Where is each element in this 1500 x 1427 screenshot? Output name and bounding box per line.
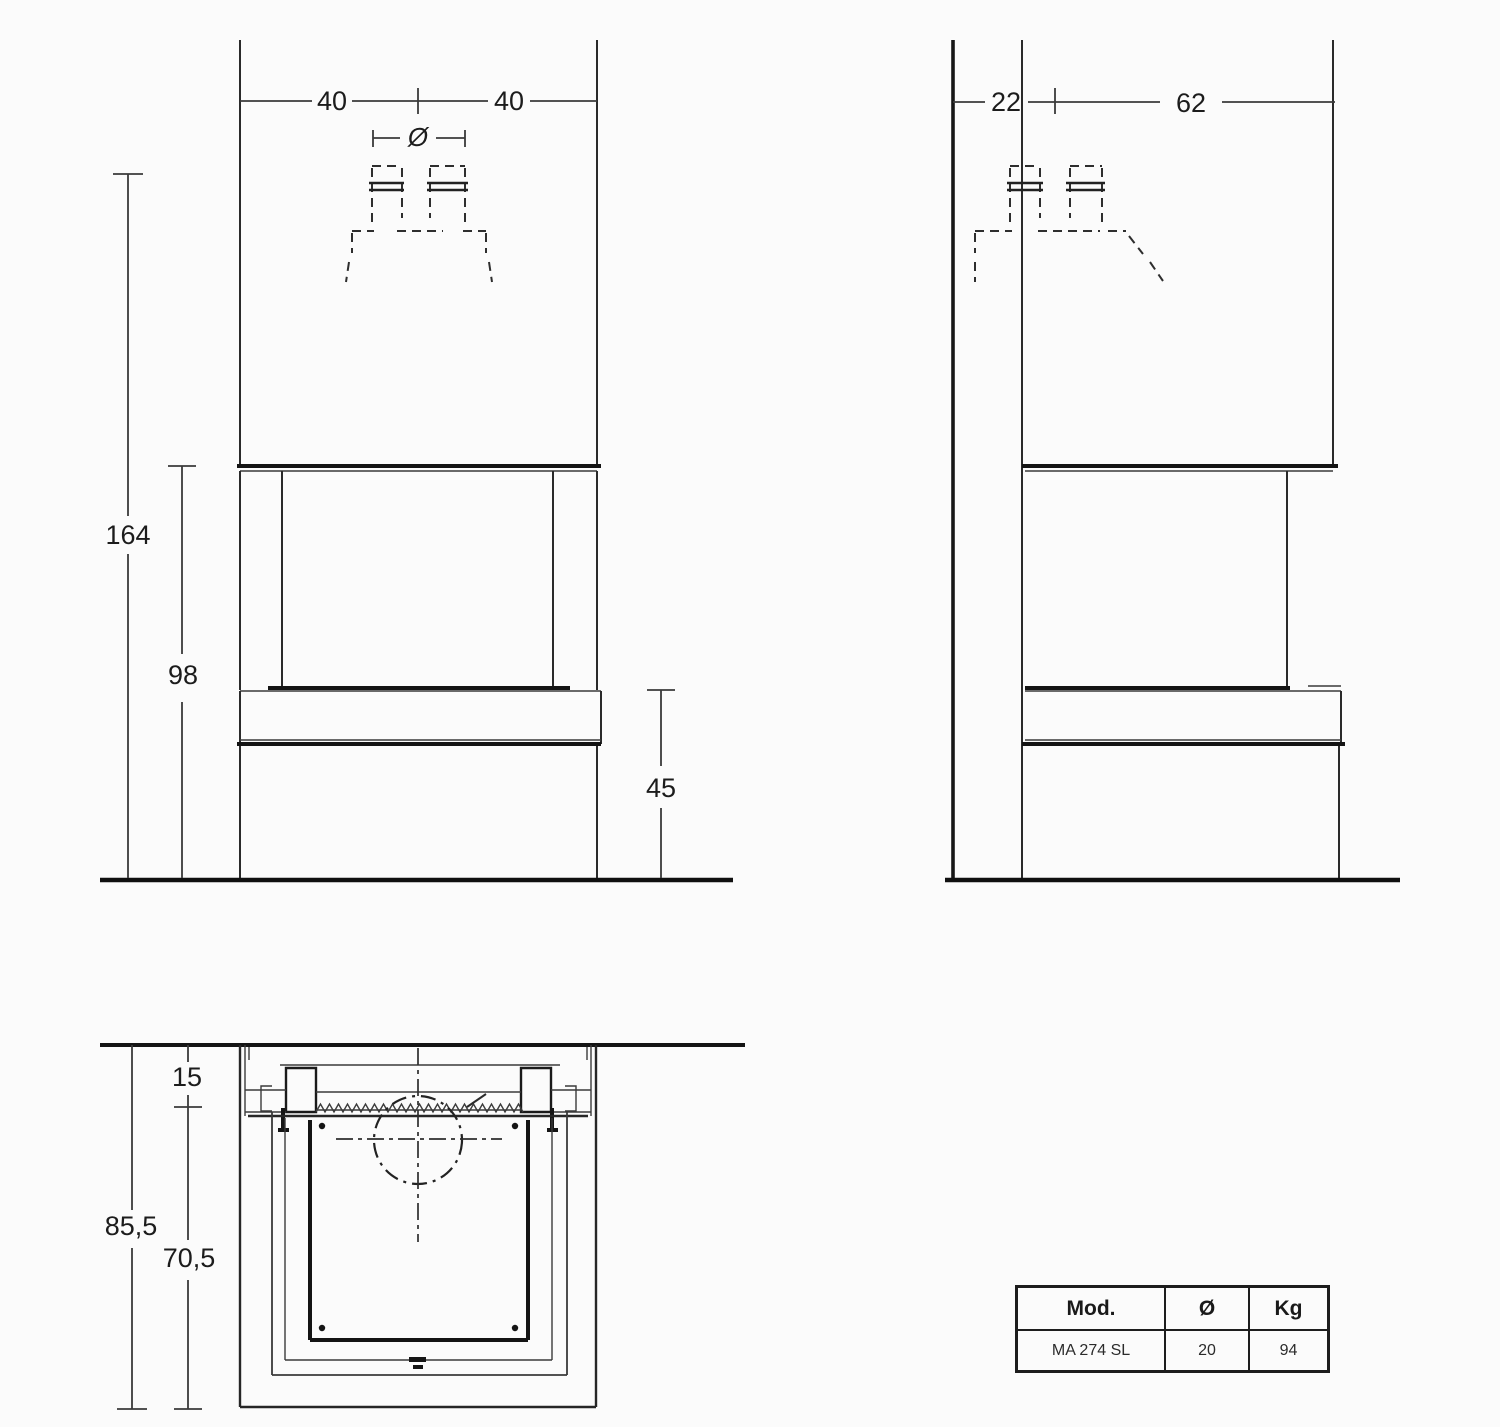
flue-center-lines-plan (336, 1048, 502, 1242)
screw-top-left (319, 1123, 325, 1129)
frame-post-left (286, 1068, 316, 1112)
side-view (945, 40, 1400, 880)
screw-top-right (512, 1123, 518, 1129)
bottom-clip-bar-2 (413, 1365, 423, 1369)
spec-table-header-model: Mod. (1018, 1288, 1164, 1329)
dim-label-70-5: 70,5 (163, 1243, 216, 1273)
spec-table-cell-diameter: 20 (1164, 1329, 1248, 1370)
flue-flare-dashed-side (975, 231, 1163, 282)
dim-label-62: 62 (1176, 88, 1206, 118)
flue-circle-plan (374, 1096, 462, 1184)
bench-sides-front (240, 691, 601, 744)
firebox-column-lines (282, 471, 553, 688)
bottom-clip-bar (409, 1357, 426, 1362)
base-sides-front (240, 746, 597, 878)
spec-table-cell-weight: 94 (1248, 1329, 1327, 1370)
dim-label-40-right: 40 (494, 86, 524, 116)
flue-collar-dashed-side (1010, 166, 1102, 228)
screw-bottom-left (319, 1325, 325, 1331)
plan-view (100, 1045, 745, 1409)
dim-label-40-left: 40 (317, 86, 347, 116)
firebox-plan (310, 1120, 528, 1340)
inner-shell-plan (272, 1112, 567, 1375)
fireplace-technical-drawing: 40 40 Ø 164 98 45 22 62 15 85,5 70,5 (0, 0, 1500, 1427)
dim-label-45: 45 (646, 773, 676, 803)
spec-table: Mod. Ø Kg MA 274 SL 20 94 (1015, 1285, 1330, 1373)
dim-label-22: 22 (991, 87, 1021, 117)
flue-collar-rings-front (369, 183, 468, 190)
drawing-page: 40 40 Ø 164 98 45 22 62 15 85,5 70,5 Mod… (0, 0, 1500, 1427)
pin-left-foot (278, 1128, 289, 1132)
screw-bottom-right (512, 1325, 518, 1331)
dim-label-98: 98 (168, 660, 198, 690)
frame-post-right (521, 1068, 551, 1112)
spec-table-header-weight: Kg (1248, 1288, 1327, 1329)
spec-table-header-diameter: Ø (1164, 1288, 1248, 1329)
insulation-zigzag-line (316, 1104, 523, 1112)
dimension-labels: 40 40 Ø 164 98 45 22 62 15 85,5 70,5 (105, 86, 1206, 1273)
dim-label-164: 164 (105, 520, 150, 550)
dim-label-85-5: 85,5 (105, 1211, 158, 1241)
front-view (100, 40, 733, 880)
spec-table-cell-model: MA 274 SL (1018, 1329, 1164, 1370)
dim-label-flue-diameter: Ø (407, 122, 430, 152)
body-side-lines-front (240, 471, 597, 690)
flue-collar-dashed-front (372, 166, 465, 228)
flue-flare-dashed-front (346, 231, 492, 282)
dim-label-15: 15 (172, 1062, 202, 1092)
